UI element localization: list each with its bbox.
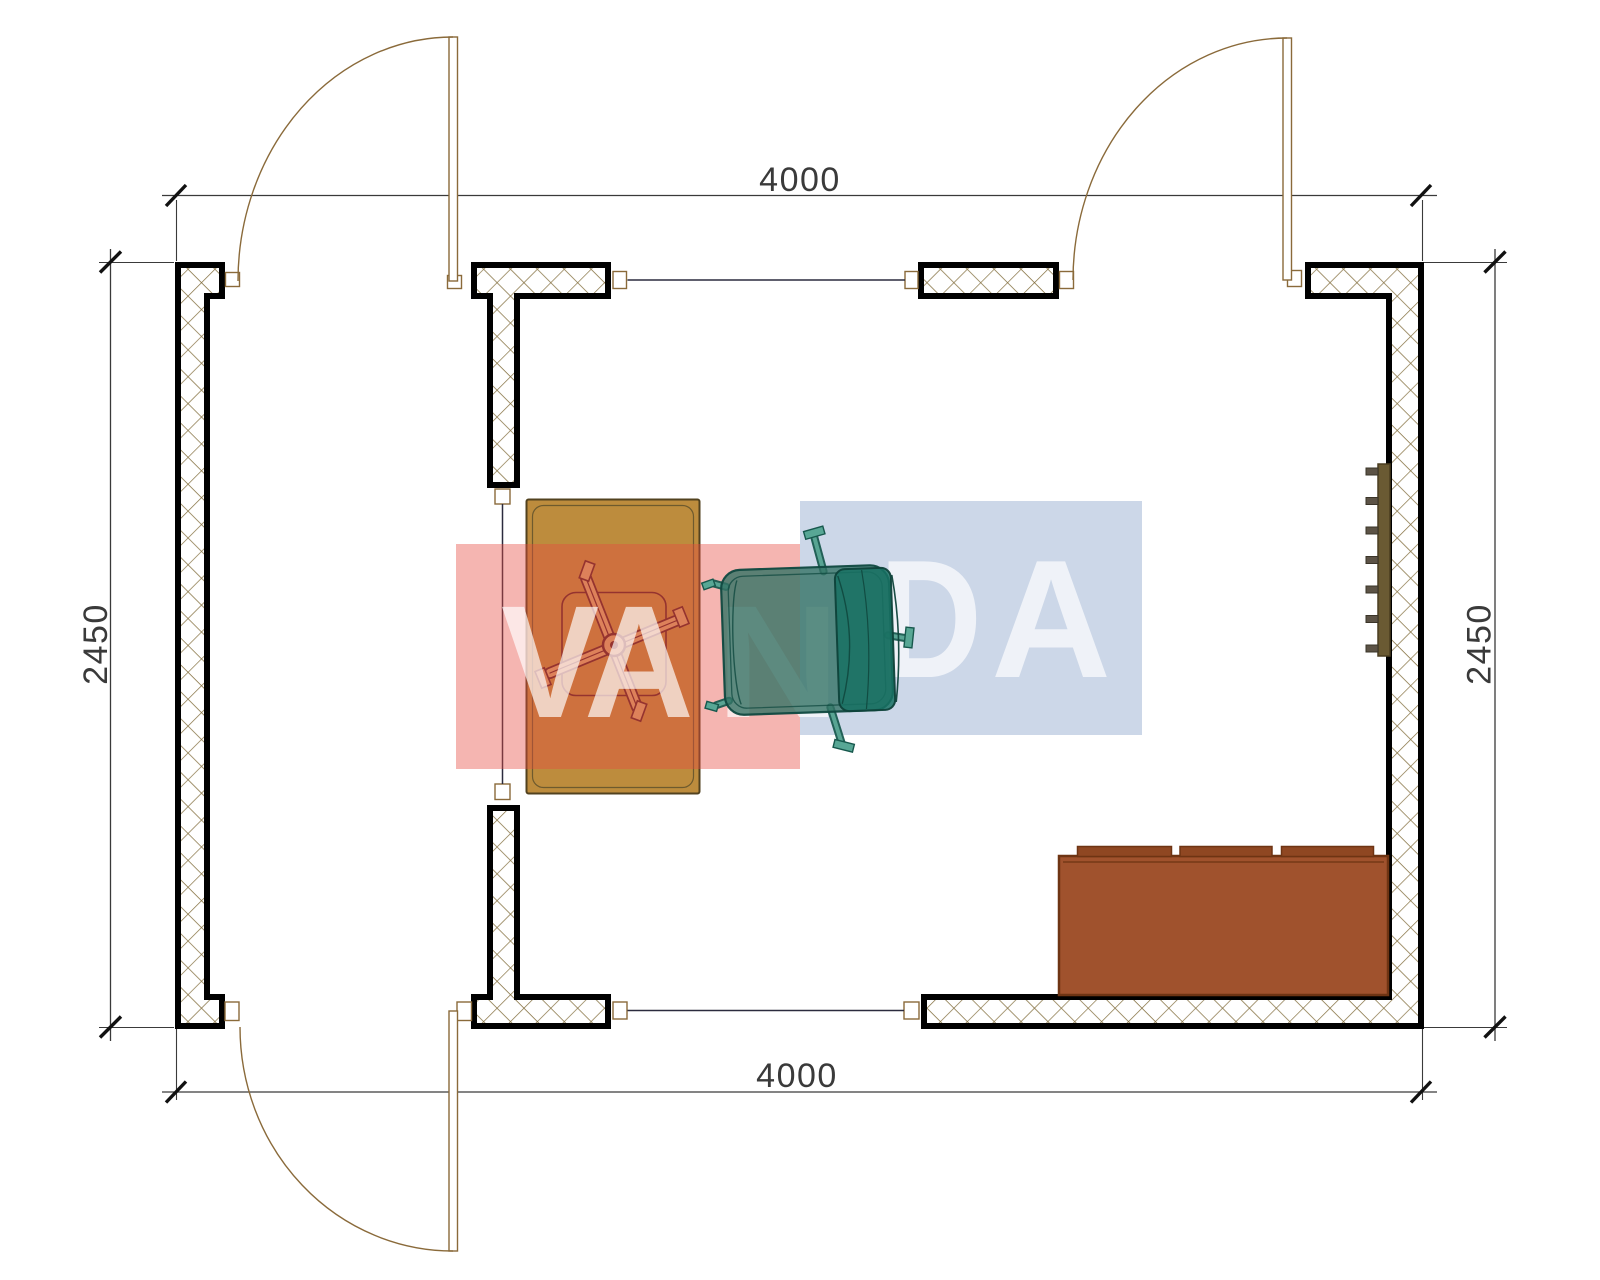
svg-text:4000: 4000 <box>759 161 841 199</box>
svg-text:A: A <box>584 573 694 751</box>
svg-text:4000: 4000 <box>756 1057 838 1095</box>
svg-text:2450: 2450 <box>1461 603 1499 685</box>
svg-text:2450: 2450 <box>77 603 115 685</box>
svg-text:A: A <box>991 526 1111 713</box>
